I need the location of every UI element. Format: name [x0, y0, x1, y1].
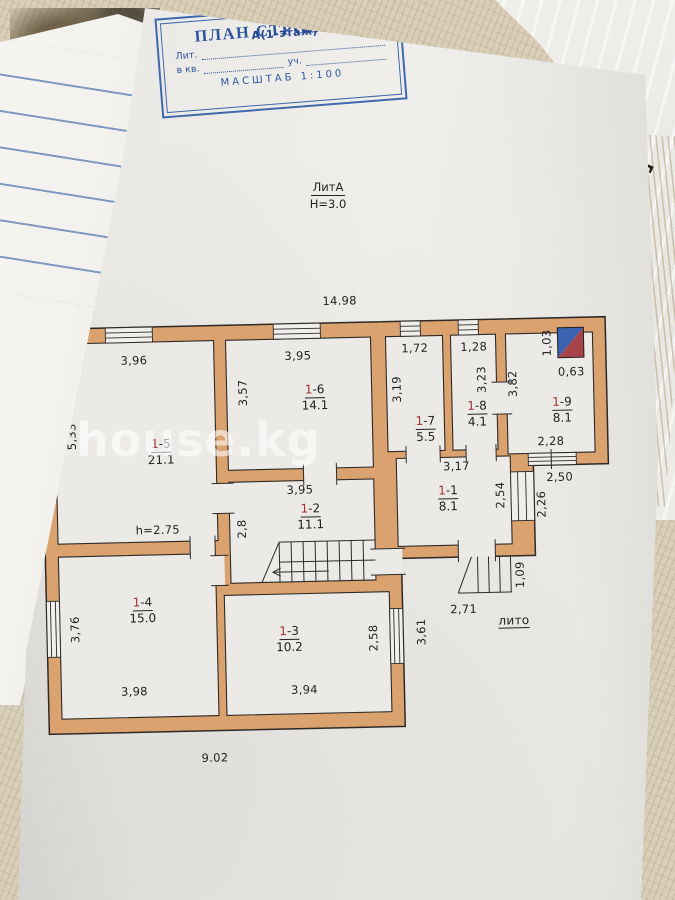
dim-room4-width: 3,98 — [121, 684, 148, 699]
window-top-room7 — [400, 321, 420, 336]
room8-id: 1-8 — [467, 398, 487, 414]
dim-total-width: 14.98 — [322, 293, 357, 308]
window-right-room3 — [390, 608, 404, 663]
dim-room6-width: 3,95 — [284, 348, 311, 363]
window-right-room1 — [511, 471, 535, 521]
dim-room8-width: 1,28 — [460, 339, 487, 354]
dim-room8-height: 3,23 — [474, 366, 489, 393]
dim-steps-width: 2,71 — [450, 602, 477, 617]
dim-exterior-226: 2,26 — [534, 491, 549, 518]
lito-label: лито — [498, 613, 529, 629]
room6-id: 1-6 — [305, 382, 325, 398]
room4-area: 15.0 — [129, 611, 156, 626]
room9-id-num: -9 — [560, 394, 572, 408]
window-top-room6 — [273, 323, 320, 339]
dim-room3-height: 2,58 — [366, 624, 381, 651]
dim-room6-height: 3,57 — [235, 379, 250, 406]
room1-id-num: -1 — [446, 483, 458, 497]
room2-area: 11.1 — [297, 517, 324, 532]
room4-id: 1-4 — [132, 595, 152, 611]
dim-room9-bottom: 2,28 — [537, 434, 564, 449]
dim-room1-width: 3,17 — [443, 459, 470, 474]
dim-exterior-250: 2,50 — [546, 469, 573, 484]
color-mark — [557, 327, 584, 358]
door-stairhall-room1 — [370, 548, 406, 575]
room3-id-num: -3 — [287, 624, 299, 638]
dim-exterior-361: 3,61 — [414, 618, 429, 645]
dim-mark-width: 0,63 — [558, 364, 585, 379]
exterior-steps — [457, 556, 512, 593]
floor-plan-drawing — [24, 281, 635, 794]
dim-steps-height: 1,09 — [513, 561, 528, 588]
room3-id: 1-3 — [279, 624, 299, 640]
room7-id-num: -7 — [423, 414, 435, 428]
window-left-room4 — [46, 601, 60, 657]
dim-mark-height: 1,03 — [539, 329, 554, 356]
stamp-kv-label: в кв. — [176, 63, 200, 76]
floor-plan: 14.98 3,96 5,33 1-5 21.1 h=2.75 3,95 3,5… — [24, 281, 635, 794]
stamp-kv-dotline — [203, 57, 284, 74]
room-1-3 — [224, 592, 392, 716]
window-top-room8 — [458, 320, 478, 335]
room4-id-num: -4 — [140, 595, 152, 609]
stamp-uch-dotline — [305, 49, 386, 66]
dim-room5-width: 3,96 — [120, 353, 147, 368]
room5-id-num: -5 — [158, 437, 170, 451]
room1-area: 8.1 — [439, 499, 458, 513]
dim-room7-width: 1,72 — [401, 341, 428, 356]
room5-area: 21.1 — [148, 453, 175, 468]
dim-bottom-width: 9.02 — [201, 750, 228, 765]
room9-area: 8.1 — [553, 410, 572, 424]
room8-area: 4.1 — [468, 414, 487, 428]
dim-room3-width: 3,94 — [291, 682, 318, 697]
window-top-room5 — [105, 327, 152, 343]
room8-id-num: -8 — [475, 398, 487, 412]
dim-room4-height: 3,76 — [68, 616, 83, 643]
window-bottom-room9 — [528, 452, 576, 465]
stamp-uch-label: уч. — [287, 55, 302, 67]
room7-area: 5.5 — [416, 430, 435, 444]
room6-area: 14.1 — [301, 398, 328, 413]
room6-id-num: -6 — [312, 382, 324, 396]
dim-room1-height: 2,54 — [493, 482, 508, 509]
room2-id: 1-2 — [300, 501, 320, 517]
building-lit-label: ЛитА — [311, 180, 346, 196]
building-label: ЛитА Н=3.0 — [296, 180, 360, 211]
room2-id-num: -2 — [308, 501, 320, 515]
ceiling-height-note: h=2.75 — [135, 522, 180, 537]
building-height-label: Н=3.0 — [296, 197, 360, 211]
stamp-lit-label: Лит. — [175, 50, 198, 63]
dim-room2-height: 2,8 — [235, 519, 249, 539]
photo-scene: S ПЛАН СТРОЕНИЙ Лит. А(1-этаж) в кв. уч. — [0, 0, 675, 900]
dim-room7-height: 3,19 — [389, 376, 404, 403]
dim-room9-wall: 3,82 — [505, 370, 520, 397]
room9-id: 1-9 — [552, 394, 572, 410]
room5-id: 1-5 — [151, 437, 171, 453]
room7-id: 1-7 — [415, 414, 435, 430]
room3-area: 10.2 — [276, 640, 303, 655]
dim-room2-width: 3,95 — [286, 482, 313, 497]
room1-id: 1-1 — [438, 483, 458, 499]
